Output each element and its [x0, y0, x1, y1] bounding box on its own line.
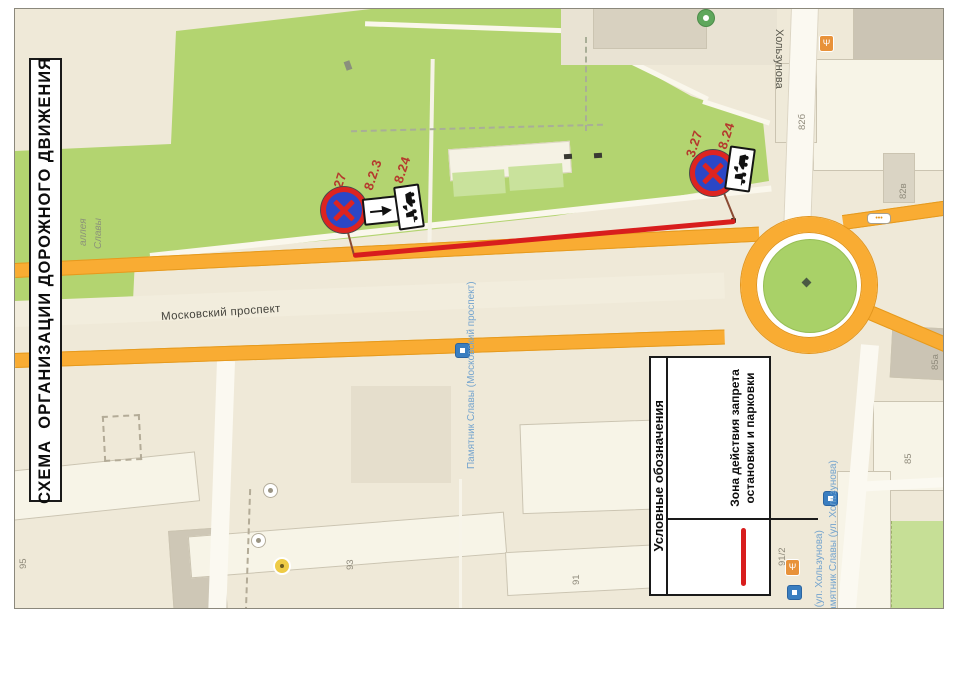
building	[813, 59, 944, 171]
building-label: 82б	[798, 114, 808, 130]
tow-truck-icon	[399, 189, 420, 225]
green-area	[891, 521, 944, 609]
legend-header-cell: Условные обозначения	[651, 358, 668, 594]
sign-3-27-no-stopping	[321, 187, 367, 233]
monument-icon	[564, 154, 572, 160]
building-label: 85	[904, 453, 914, 464]
building	[351, 386, 451, 483]
legend-item-label-cell: Зона действия запрета остановки и парков…	[668, 358, 818, 520]
road-moskovsky-lower	[15, 329, 725, 368]
map-canvas[interactable]: ••• Ψ Ψ Московский проспект Хользунова а…	[14, 8, 944, 609]
sign-plate-8-24	[724, 145, 756, 192]
alley-label-line2: Славы	[94, 218, 104, 249]
lawn-patch	[452, 169, 506, 197]
footpath	[459, 479, 462, 609]
dashed-boundary	[585, 37, 587, 131]
building-label: 82в	[899, 183, 909, 199]
yellow-poi-icon[interactable]	[273, 557, 291, 575]
legend-zone-line-symbol	[741, 528, 746, 586]
dashed-boundary	[102, 414, 142, 462]
road-badge-dots: •••	[875, 215, 882, 222]
road-badge: •••	[867, 213, 891, 224]
restaurant-poi-icon[interactable]: Ψ	[819, 35, 834, 52]
monument-icon	[594, 153, 602, 159]
building-label: 85а	[931, 354, 941, 370]
legend-item-label: Зона действия запрета остановки и парков…	[728, 363, 758, 513]
legend-box: Условные обозначения Зона действия запре…	[649, 356, 771, 596]
building-label: 91	[572, 574, 582, 585]
transit-stop-label: Памятник Славы (ул. Хользунова)	[829, 460, 839, 609]
camera-poi-icon[interactable]	[251, 533, 266, 548]
street-label-kholzunova: Хользунова	[773, 29, 784, 89]
lawn-patch	[508, 163, 564, 191]
roundabout-island	[763, 239, 857, 333]
building-label: 95	[19, 558, 29, 569]
tow-truck-icon	[730, 151, 751, 187]
building	[593, 8, 707, 49]
alley-label-line1: аллея	[79, 218, 89, 246]
legend-header: Условные обозначения	[651, 400, 666, 551]
road-east	[842, 201, 944, 230]
sheet-title-box: СХЕМА ОРГАНИЗАЦИИ ДОРОЖНОГО ДВИЖЕНИЯ	[29, 58, 62, 502]
tree-poi-icon[interactable]	[697, 9, 715, 27]
transit-stop-label: Памятник Славы (Московский проспект)	[467, 281, 477, 469]
sheet-title: СХЕМА ОРГАНИЗАЦИИ ДОРОЖНОГО ДВИЖЕНИЯ	[36, 57, 55, 504]
arrow-right-icon	[369, 204, 394, 216]
camera-poi-icon[interactable]	[263, 483, 278, 498]
building-label: 93	[346, 559, 356, 570]
legend-item-symbol-cell	[668, 520, 818, 594]
